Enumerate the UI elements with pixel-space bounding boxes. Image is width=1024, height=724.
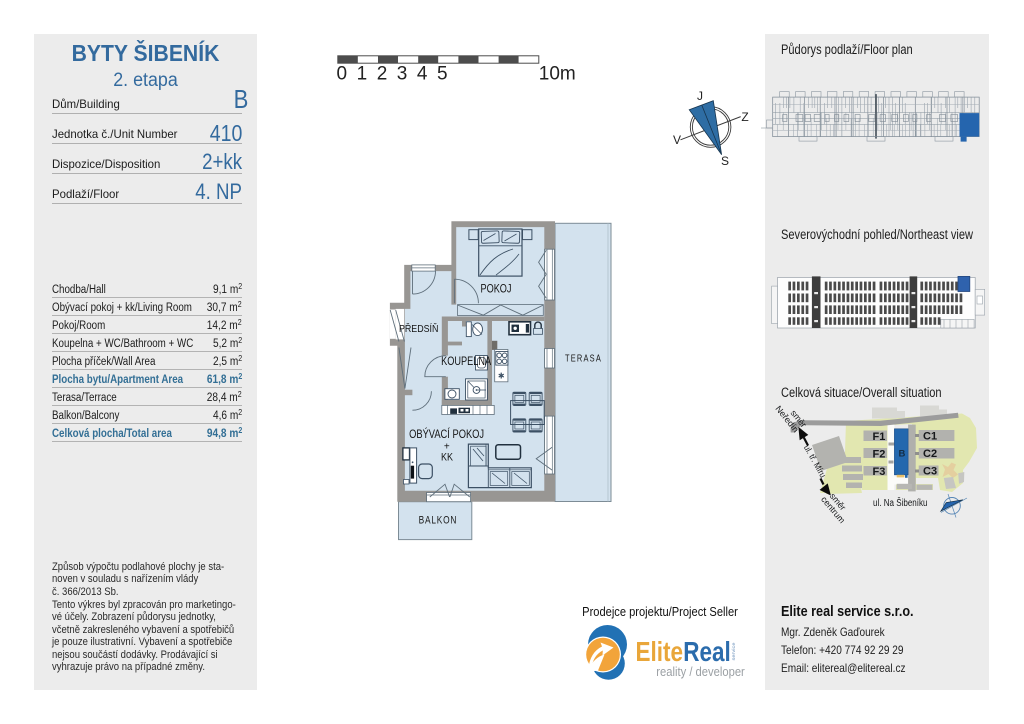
svg-text:Z: Z (741, 110, 748, 124)
svg-text:10m: 10m (539, 64, 576, 85)
svg-text:service: service (731, 642, 736, 661)
svg-text:C3: C3 (923, 466, 937, 478)
svg-text:0: 0 (337, 64, 348, 85)
svg-text:POKOJ: POKOJ (481, 284, 512, 296)
svg-text:PŘEDSÍŇ: PŘEDSÍŇ (399, 322, 439, 335)
svg-text:S: S (721, 154, 729, 168)
svg-text:TERASA: TERASA (565, 354, 602, 365)
svg-text:Elite: Elite (636, 636, 684, 667)
svg-text:✱: ✱ (498, 372, 505, 381)
svg-text:4: 4 (417, 64, 428, 85)
svg-text:V: V (673, 133, 681, 147)
svg-text:KOUPELNA: KOUPELNA (441, 356, 491, 368)
svg-text:reality / developer: reality / developer (656, 664, 745, 679)
svg-text:OBÝVACÍ POKOJ: OBÝVACÍ POKOJ (409, 428, 484, 441)
svg-text:ul. Na Šibeníku: ul. Na Šibeníku (873, 496, 928, 509)
svg-text:F2: F2 (873, 449, 886, 461)
svg-text:C1: C1 (923, 431, 937, 443)
svg-text:5: 5 (437, 64, 448, 85)
svg-text:C2: C2 (923, 448, 937, 460)
svg-text:3: 3 (397, 64, 408, 85)
svg-text:2: 2 (377, 64, 388, 85)
svg-text:F1: F1 (873, 431, 886, 443)
svg-text:BALKON: BALKON (419, 515, 458, 527)
svg-text:Real: Real (683, 636, 731, 667)
svg-text:F3: F3 (873, 466, 886, 478)
svg-text:J: J (697, 89, 703, 103)
svg-text:KK: KK (441, 452, 454, 464)
svg-text:B: B (899, 449, 906, 460)
svg-text:1: 1 (357, 64, 368, 85)
